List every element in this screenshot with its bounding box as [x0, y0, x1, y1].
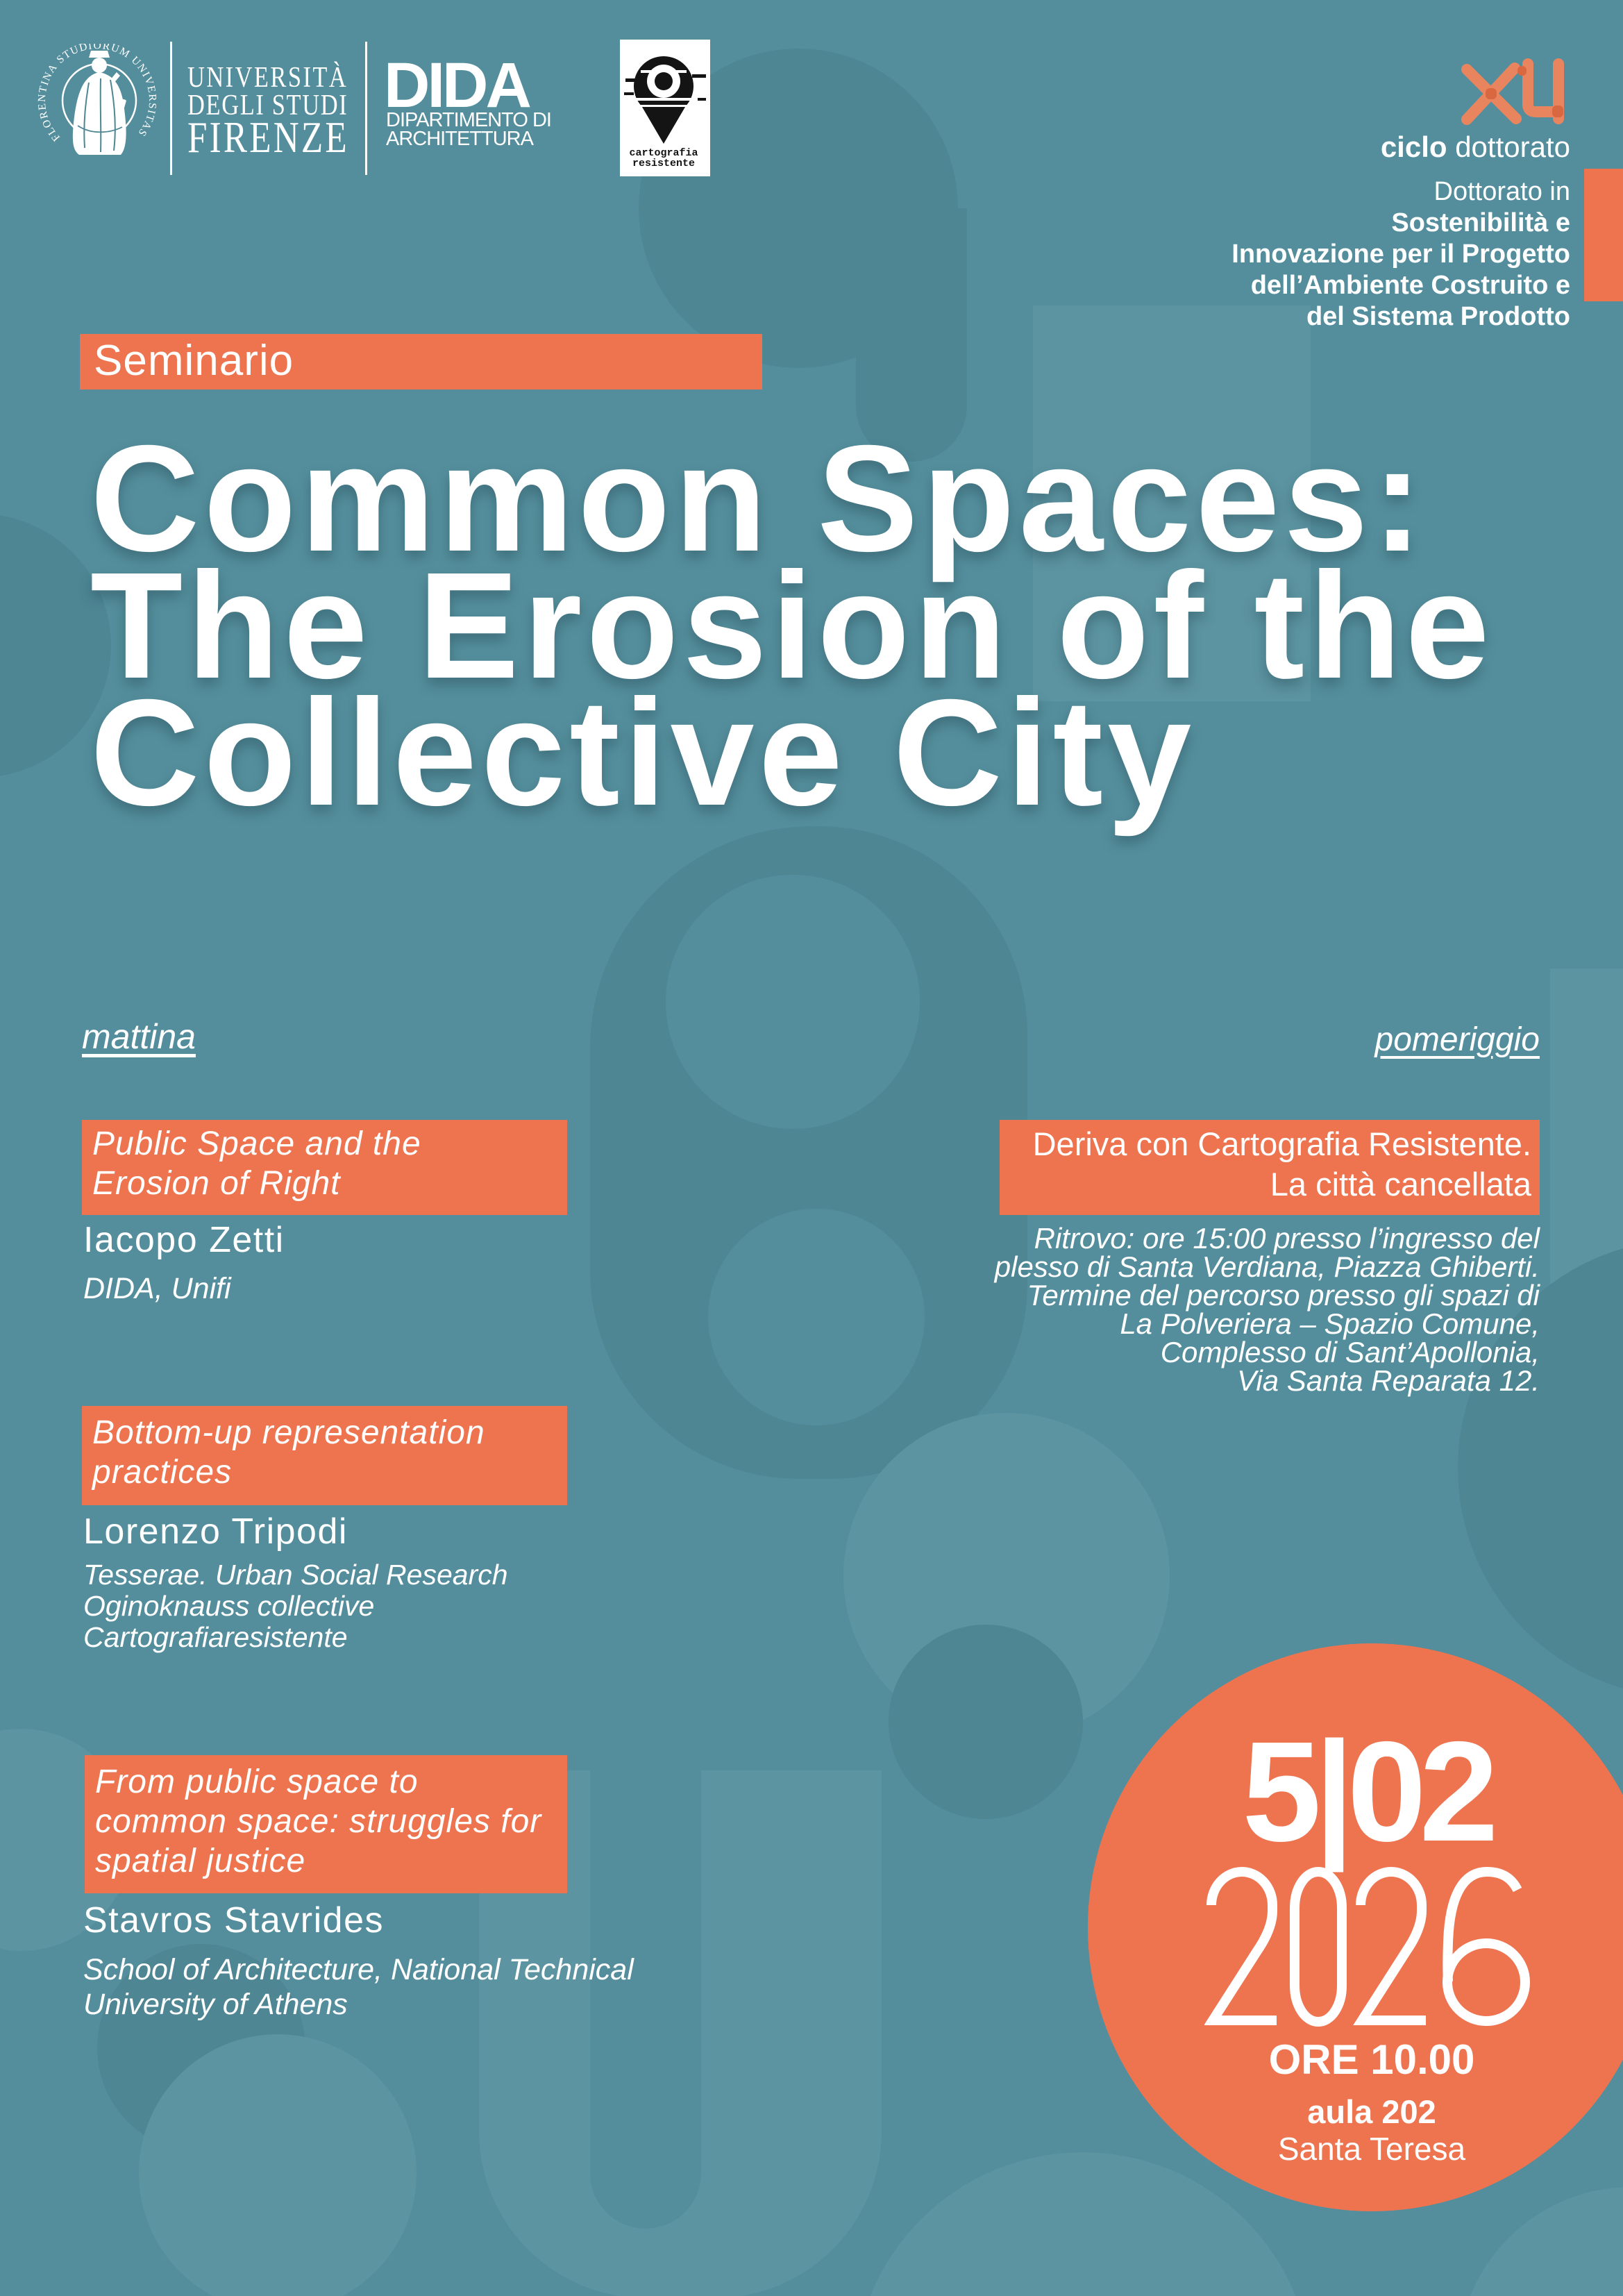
- svg-text:resistente: resistente: [632, 158, 695, 169]
